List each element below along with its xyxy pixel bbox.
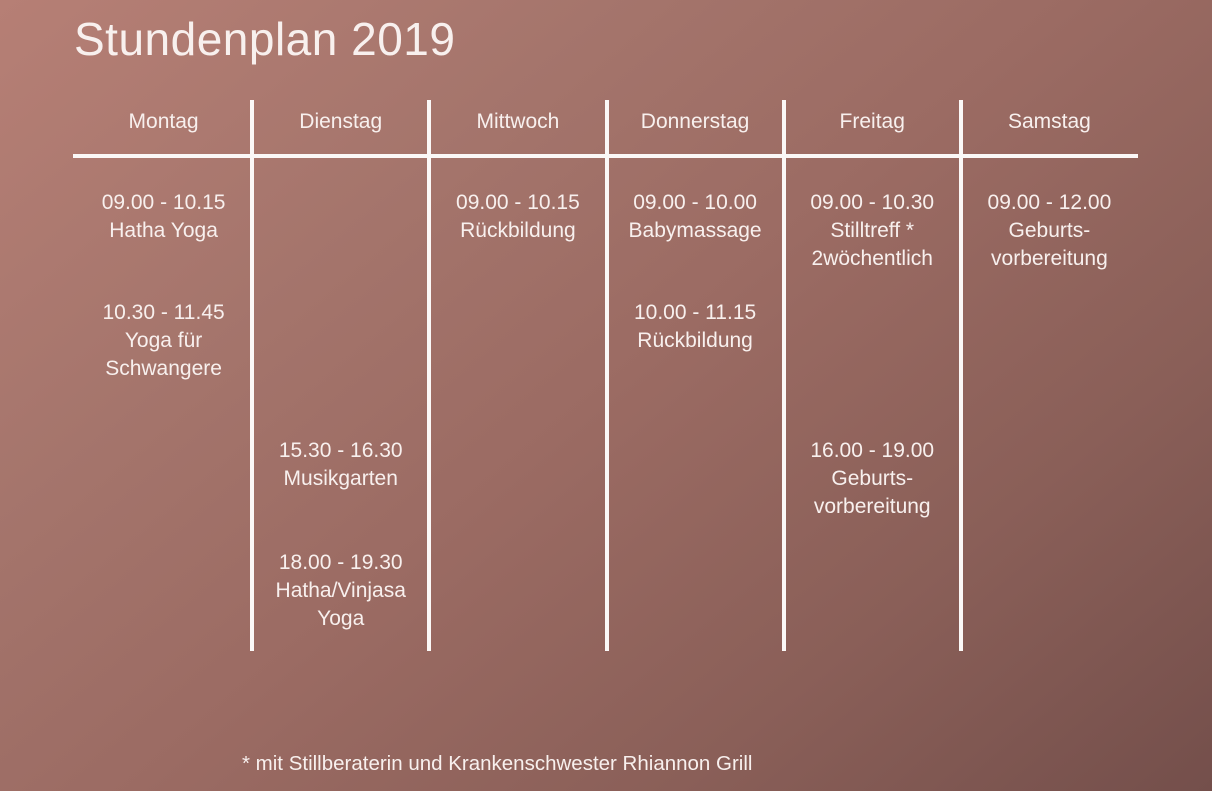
- event-card: 09.00 - 10.30Stilltreff *2wöchentlich: [784, 189, 961, 273]
- column-divider: [250, 100, 254, 651]
- event-name-line: Geburts-: [784, 465, 961, 493]
- event-card: 15.30 - 16.30Musikgarten: [252, 437, 429, 493]
- event-card: 10.00 - 11.15Rückbildung: [607, 299, 784, 355]
- event-time: 16.00 - 19.00: [784, 437, 961, 465]
- event-card: 10.30 - 11.45Yoga fürSchwangere: [75, 299, 252, 383]
- column-divider: [605, 100, 609, 651]
- event-time: 09.00 - 10.15: [75, 189, 252, 217]
- event-card: 09.00 - 10.15Rückbildung: [429, 189, 606, 245]
- event-name-line: Rückbildung: [429, 217, 606, 245]
- column-divider: [959, 100, 963, 651]
- event-name-line: Stilltreff *: [784, 217, 961, 245]
- day-header-dienstag: Dienstag: [252, 108, 429, 136]
- event-time: 15.30 - 16.30: [252, 437, 429, 465]
- footnote: * mit Stillberaterin und Krankenschweste…: [242, 694, 892, 791]
- column-divider: [427, 100, 431, 651]
- event-name-line: Hatha Yoga: [75, 217, 252, 245]
- event-time: 10.00 - 11.15: [607, 299, 784, 327]
- event-name-line: Babymassage: [607, 217, 784, 245]
- event-time: 09.00 - 10.15: [429, 189, 606, 217]
- event-name-line: Geburts-: [961, 217, 1138, 245]
- event-name-line: Musikgarten: [252, 465, 429, 493]
- schedule-poster: Stundenplan 2019 Montag09.00 - 10.15Hath…: [0, 0, 1212, 791]
- event-time: 09.00 - 10.00: [607, 189, 784, 217]
- event-name-line: vorbereitung: [784, 493, 961, 521]
- event-card: 16.00 - 19.00Geburts-vorbereitung: [784, 437, 961, 521]
- column-divider: [782, 100, 786, 651]
- day-header-montag: Montag: [75, 108, 252, 136]
- event-name-line: Rückbildung: [607, 327, 784, 355]
- day-header-samstag: Samstag: [961, 108, 1138, 136]
- event-card: 09.00 - 12.00Geburts-vorbereitung: [961, 189, 1138, 273]
- event-name-line: Yoga für: [75, 327, 252, 355]
- event-name-line: Yoga: [252, 605, 429, 633]
- footnote-line-1: * mit Stillberaterin und Krankenschweste…: [242, 750, 892, 778]
- day-header-freitag: Freitag: [784, 108, 961, 136]
- day-header-mittwoch: Mittwoch: [429, 108, 606, 136]
- event-time: 09.00 - 12.00: [961, 189, 1138, 217]
- page-title: Stundenplan 2019: [74, 13, 455, 65]
- event-card: 09.00 - 10.15Hatha Yoga: [75, 189, 252, 245]
- event-name-line: vorbereitung: [961, 245, 1138, 273]
- event-name-line: Hatha/Vinjasa: [252, 577, 429, 605]
- event-time: 18.00 - 19.30: [252, 549, 429, 577]
- event-time: 09.00 - 10.30: [784, 189, 961, 217]
- event-time: 10.30 - 11.45: [75, 299, 252, 327]
- event-name-line: Schwangere: [75, 355, 252, 383]
- event-card: 09.00 - 10.00Babymassage: [607, 189, 784, 245]
- day-header-donnerstag: Donnerstag: [607, 108, 784, 136]
- event-card: 18.00 - 19.30Hatha/VinjasaYoga: [252, 549, 429, 633]
- event-name-line: 2wöchentlich: [784, 245, 961, 273]
